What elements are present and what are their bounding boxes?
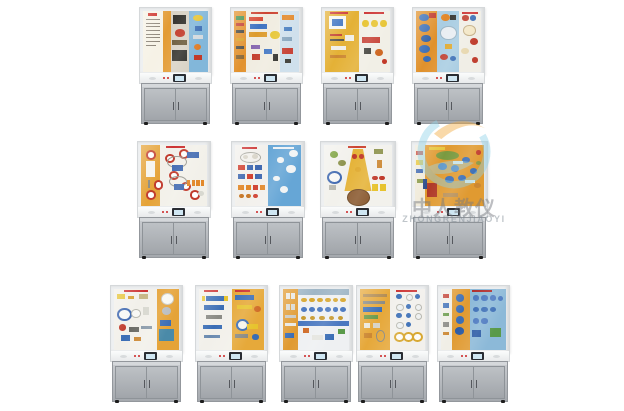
panel-stripe — [163, 11, 171, 72]
power-button — [134, 355, 136, 357]
exhibit-item — [249, 32, 267, 37]
exhibit-item — [329, 185, 335, 190]
exhibit-item — [285, 315, 296, 318]
display-case — [356, 285, 429, 353]
door-handle — [178, 102, 179, 110]
cabinet-door-left — [361, 366, 394, 399]
speaker-grille-right — [378, 211, 385, 214]
exhibit-item — [481, 307, 488, 312]
base-cabinet — [439, 361, 508, 402]
exhibit-item — [154, 180, 164, 189]
exhibit-item — [481, 295, 488, 300]
display-case — [320, 141, 396, 209]
start-button — [138, 355, 140, 357]
exhibit-item — [372, 184, 377, 191]
cabinet-door-right — [315, 366, 348, 399]
speaker-grille-right — [194, 211, 201, 214]
door-handle — [390, 380, 391, 388]
speaker-grille-right — [469, 211, 476, 214]
display-case — [195, 285, 268, 353]
exhibit-item — [443, 303, 449, 308]
exhibit-item — [237, 305, 251, 309]
cabinet-door-left — [325, 222, 359, 255]
speaker-grille-left — [240, 77, 247, 80]
door-handle — [234, 380, 235, 388]
caster-wheel — [203, 122, 207, 125]
exhibit-item — [329, 316, 334, 320]
caster-wheel — [200, 400, 204, 403]
console-screen-face — [448, 76, 457, 81]
exhibit-item — [481, 318, 488, 323]
exhibit-item — [456, 305, 464, 312]
speaker-grille-left — [422, 77, 429, 80]
exhibit-item — [252, 54, 260, 60]
exhibit-item — [146, 150, 156, 159]
console-screen — [264, 74, 277, 82]
display-cabinet-r3-5 — [437, 285, 510, 403]
door-handle — [360, 236, 361, 244]
start-button — [441, 211, 443, 213]
display-case — [137, 141, 211, 209]
display-case — [437, 285, 510, 353]
exhibit-item — [416, 160, 423, 165]
exhibit-item — [330, 151, 338, 158]
exhibit-item — [301, 298, 307, 303]
exhibit-item — [285, 333, 294, 338]
door-handle — [360, 102, 361, 110]
exhibit-item — [396, 313, 401, 318]
console-screen — [446, 74, 459, 82]
exhibit-item — [204, 305, 224, 309]
start-button — [440, 77, 442, 79]
exhibit-item — [465, 180, 475, 182]
display-cabinet-r1-2 — [230, 7, 303, 125]
cabinet-door-left — [115, 366, 148, 399]
exhibit-item — [146, 23, 160, 24]
console-screen — [314, 352, 327, 360]
exhibit-item — [282, 48, 293, 54]
start-button — [166, 211, 168, 213]
exhibit-item — [363, 307, 383, 311]
exhibit-item — [174, 184, 184, 189]
exhibit-item — [441, 14, 449, 21]
exhibit-item — [462, 12, 479, 14]
exhibit-item — [193, 15, 203, 22]
start-button — [384, 355, 386, 357]
exhibit-item — [148, 13, 156, 15]
speaker-grille-right — [412, 355, 419, 358]
console-screen-face — [174, 210, 183, 215]
caster-wheel — [385, 122, 389, 125]
caster-wheel — [144, 122, 148, 125]
exhibit-item — [252, 334, 259, 339]
caster-wheel — [235, 122, 239, 125]
exhibit-panel — [199, 289, 264, 350]
exhibit-item — [146, 45, 156, 46]
exhibit-item — [196, 180, 199, 185]
exhibit-item — [260, 185, 265, 190]
exhibit-item — [264, 49, 272, 54]
exhibit-item — [282, 15, 294, 20]
start-button — [350, 211, 352, 213]
exhibit-item — [330, 39, 344, 41]
cabinet-door-left — [144, 88, 177, 121]
exhibit-item — [317, 307, 323, 312]
exhibit-item — [490, 328, 502, 337]
caster-wheel — [202, 256, 206, 259]
display-cabinet-r2-1 — [137, 141, 211, 259]
caster-wheel — [344, 400, 348, 403]
exhibit-item — [242, 147, 258, 149]
caster-wheel — [174, 400, 178, 403]
exhibit-item — [198, 191, 203, 196]
panel-stripe — [441, 289, 452, 350]
caster-wheel — [420, 400, 424, 403]
exhibit-item — [472, 57, 478, 62]
door-handle — [471, 380, 472, 388]
start-button — [223, 355, 225, 357]
exhibit-panel — [114, 289, 179, 350]
exhibit-item — [238, 185, 243, 190]
display-case — [139, 7, 212, 75]
exhibit-item — [359, 154, 364, 159]
exhibit-item — [473, 318, 480, 323]
power-button — [461, 355, 463, 357]
exhibit-panel — [415, 145, 484, 206]
base-cabinet — [139, 217, 209, 258]
console-screen — [266, 208, 279, 216]
console-screen-face — [358, 210, 367, 215]
exhibit-item — [284, 27, 292, 31]
cabinet-door-right — [146, 366, 179, 399]
console-screen — [144, 352, 157, 360]
product-collage-photo: 中人教仪 ZHONGRENJIAOYI — [0, 0, 624, 411]
exhibit-item — [438, 163, 446, 170]
exhibit-item — [363, 301, 385, 304]
power-button — [219, 355, 221, 357]
door-handle — [355, 102, 356, 110]
exhibit-item — [247, 174, 254, 179]
exhibit-item — [364, 333, 372, 338]
exhibit-item — [187, 180, 190, 185]
display-case — [411, 141, 488, 209]
exhibit-item — [419, 24, 430, 32]
exhibit-item — [236, 38, 244, 41]
caster-wheel — [442, 400, 446, 403]
console-screen-face — [231, 354, 240, 359]
power-button — [163, 77, 165, 79]
speaker-grille-left — [366, 355, 373, 358]
exhibit-panel — [360, 289, 425, 350]
cabinet-door-right — [357, 88, 390, 121]
exhibit-item — [285, 59, 292, 64]
base-cabinet — [323, 83, 392, 124]
exhibit-item — [286, 304, 290, 310]
exhibit-item — [473, 295, 480, 300]
exhibit-item — [282, 37, 292, 41]
door-handle — [149, 380, 150, 388]
speaker-grille-right — [377, 77, 384, 80]
display-cabinet-r2-4 — [411, 141, 488, 259]
caster-wheel — [476, 122, 480, 125]
exhibit-panel — [325, 11, 390, 72]
exhibit-item — [175, 29, 185, 36]
exhibit-item — [338, 160, 346, 167]
exhibit-item — [443, 313, 449, 317]
exhibit-item — [286, 165, 295, 173]
exhibit-item — [203, 325, 223, 329]
exhibit-item — [498, 296, 503, 301]
display-case — [110, 285, 183, 353]
display-case — [231, 141, 305, 209]
exhibit-item — [253, 185, 258, 190]
exhibit-panel — [143, 11, 208, 72]
exhibit-item — [429, 13, 436, 18]
console-screen-face — [266, 76, 275, 81]
exhibit-item — [192, 180, 195, 185]
door-handle — [451, 102, 452, 110]
exhibit-item — [470, 38, 478, 45]
exhibit-panel — [141, 145, 207, 206]
exhibit-item — [364, 323, 371, 328]
exhibit-item — [303, 328, 310, 333]
cabinet-door-left — [200, 366, 233, 399]
exhibit-item — [162, 307, 171, 315]
exhibit-item — [347, 189, 369, 206]
exhibit-item — [251, 45, 260, 50]
exhibit-item — [172, 40, 186, 45]
exhibit-item — [291, 304, 295, 310]
base-cabinet — [414, 83, 483, 124]
exhibit-item — [472, 330, 481, 336]
exhibit-item — [317, 298, 323, 303]
exhibit-item — [146, 161, 155, 177]
base-cabinet — [141, 83, 210, 124]
exhibit-item — [456, 316, 464, 323]
exhibit-item — [330, 55, 346, 58]
exhibit-item — [201, 180, 204, 185]
caster-wheel — [416, 256, 420, 259]
exhibit-item — [396, 322, 403, 329]
door-handle — [176, 236, 177, 244]
cabinet-door-right — [449, 222, 484, 255]
exhibit-item — [470, 168, 477, 173]
exhibit-item — [325, 334, 334, 340]
caster-wheel — [326, 122, 330, 125]
door-handle — [171, 236, 172, 244]
display-cabinet-r1-4 — [412, 7, 485, 125]
cabinet-door-left — [416, 222, 451, 255]
display-cabinet-r2-3 — [320, 141, 396, 259]
exhibit-item — [291, 293, 295, 299]
start-button — [465, 355, 467, 357]
speaker-grille-right — [493, 355, 500, 358]
exhibit-item — [143, 307, 150, 314]
exhibit-item — [124, 290, 147, 292]
caster-wheel — [259, 400, 263, 403]
caster-wheel — [387, 256, 391, 259]
exhibit-item — [277, 157, 284, 162]
speaker-grille-left — [423, 211, 430, 214]
exhibit-panel — [235, 145, 301, 206]
speaker-grille-left — [447, 355, 454, 358]
exhibit-item — [172, 165, 183, 170]
exhibit-item — [338, 329, 345, 334]
power-button — [346, 211, 348, 213]
exhibit-item — [117, 308, 131, 321]
exhibit-item — [325, 307, 331, 312]
exhibit-item — [129, 327, 139, 332]
display-case — [279, 285, 353, 353]
exhibit-item — [443, 294, 449, 298]
cabinet-door-right — [173, 222, 206, 255]
console-screen — [390, 352, 403, 360]
speaker-grille-left — [205, 355, 212, 358]
start-button — [308, 355, 310, 357]
exhibit-item — [146, 34, 160, 35]
caster-wheel — [115, 400, 119, 403]
exhibit-item — [362, 20, 369, 28]
display-cabinet-r3-3 — [279, 285, 353, 403]
exhibit-item — [235, 334, 248, 338]
base-cabinet — [112, 361, 181, 402]
caster-wheel — [284, 400, 288, 403]
cabinet-door-left — [442, 366, 475, 399]
door-handle — [144, 380, 145, 388]
exhibit-item — [476, 150, 482, 155]
exhibit-item — [121, 335, 130, 341]
start-button — [260, 211, 262, 213]
exhibit-item — [238, 174, 245, 179]
exhibit-item — [255, 165, 262, 170]
cabinet-door-left — [326, 88, 359, 121]
exhibit-item — [450, 15, 455, 20]
exhibit-item — [309, 307, 315, 312]
speaker-grille-left — [242, 211, 249, 214]
exhibit-item — [462, 15, 469, 20]
console-screen-face — [449, 210, 458, 215]
caster-wheel — [361, 400, 365, 403]
exhibit-item — [146, 190, 156, 199]
exhibit-item — [364, 48, 371, 54]
door-handle — [395, 380, 396, 388]
start-button — [167, 77, 169, 79]
exhibit-item — [472, 290, 492, 292]
exhibit-item — [423, 179, 428, 189]
exhibit-item — [255, 174, 262, 179]
exhibit-item — [416, 169, 423, 173]
exhibit-item — [280, 186, 288, 193]
base-cabinet — [232, 83, 301, 124]
console-screen — [229, 352, 242, 360]
exhibit-item — [166, 146, 184, 148]
exhibit-item — [416, 151, 423, 155]
base-cabinet — [413, 217, 486, 258]
cabinet-door-right — [392, 366, 425, 399]
cabinet-door-right — [266, 88, 299, 121]
door-handle — [447, 236, 448, 244]
caster-wheel — [325, 256, 329, 259]
exhibit-item — [443, 193, 458, 198]
exhibit-item — [429, 147, 446, 150]
exhibit-item — [319, 316, 324, 320]
exhibit-item — [331, 46, 346, 50]
door-handle — [264, 102, 265, 110]
exhibit-item — [453, 161, 463, 163]
exhibit-item — [330, 34, 342, 36]
console-screen-face — [473, 354, 482, 359]
exhibit-item — [204, 335, 220, 339]
exhibit-panel — [416, 11, 481, 72]
exhibit-item — [456, 294, 464, 301]
cabinet-door-left — [235, 88, 268, 121]
exhibit-item — [309, 298, 315, 303]
exhibit-item — [235, 290, 249, 292]
display-cabinet-r3-1 — [110, 285, 183, 403]
display-case — [230, 7, 303, 75]
speaker-grille-right — [288, 211, 295, 214]
power-button — [380, 355, 382, 357]
console-screen-face — [357, 76, 366, 81]
speaker-grille-left — [149, 77, 156, 80]
exhibit-item — [172, 50, 188, 61]
cabinet-door-left — [284, 366, 317, 399]
exhibit-item — [380, 20, 387, 28]
display-cabinet-r3-2 — [195, 285, 268, 403]
exhibit-item — [273, 176, 280, 181]
exhibit-item — [363, 294, 388, 297]
door-handle — [173, 102, 174, 110]
exhibit-item — [445, 176, 453, 183]
door-handle — [355, 236, 356, 244]
base-cabinet — [358, 361, 427, 402]
exhibit-item — [204, 290, 218, 292]
exhibit-item — [443, 332, 449, 336]
cabinet-door-right — [231, 366, 264, 399]
exhibit-item — [330, 12, 348, 14]
exhibit-panel — [283, 289, 349, 350]
caster-wheel — [479, 256, 483, 259]
exhibit-item — [345, 35, 354, 41]
base-cabinet — [322, 217, 394, 258]
door-handle — [229, 380, 230, 388]
caster-wheel — [417, 122, 421, 125]
power-button — [162, 211, 164, 213]
exhibit-item — [187, 152, 199, 158]
exhibit-item — [246, 194, 251, 198]
display-cabinet-r1-3 — [321, 7, 394, 125]
exhibit-item — [251, 12, 278, 14]
exhibit-item — [470, 15, 477, 20]
cabinet-door-left — [142, 222, 175, 255]
exhibit-item — [236, 46, 244, 49]
exhibit-item — [146, 19, 160, 20]
exhibit-item — [380, 184, 385, 191]
exhibit-item — [301, 307, 307, 312]
exhibit-item — [332, 19, 344, 26]
start-button — [349, 77, 351, 79]
speaker-grille-right — [468, 77, 475, 80]
exhibit-item — [195, 26, 202, 31]
console-screen — [355, 74, 368, 82]
cabinet-door-left — [236, 222, 269, 255]
exhibit-item — [160, 320, 171, 326]
exhibit-item — [443, 322, 449, 327]
cabinet-door-right — [175, 88, 208, 121]
exhibit-item — [236, 30, 244, 33]
cabinet-door-right — [357, 222, 391, 255]
exhibit-item — [134, 337, 142, 342]
